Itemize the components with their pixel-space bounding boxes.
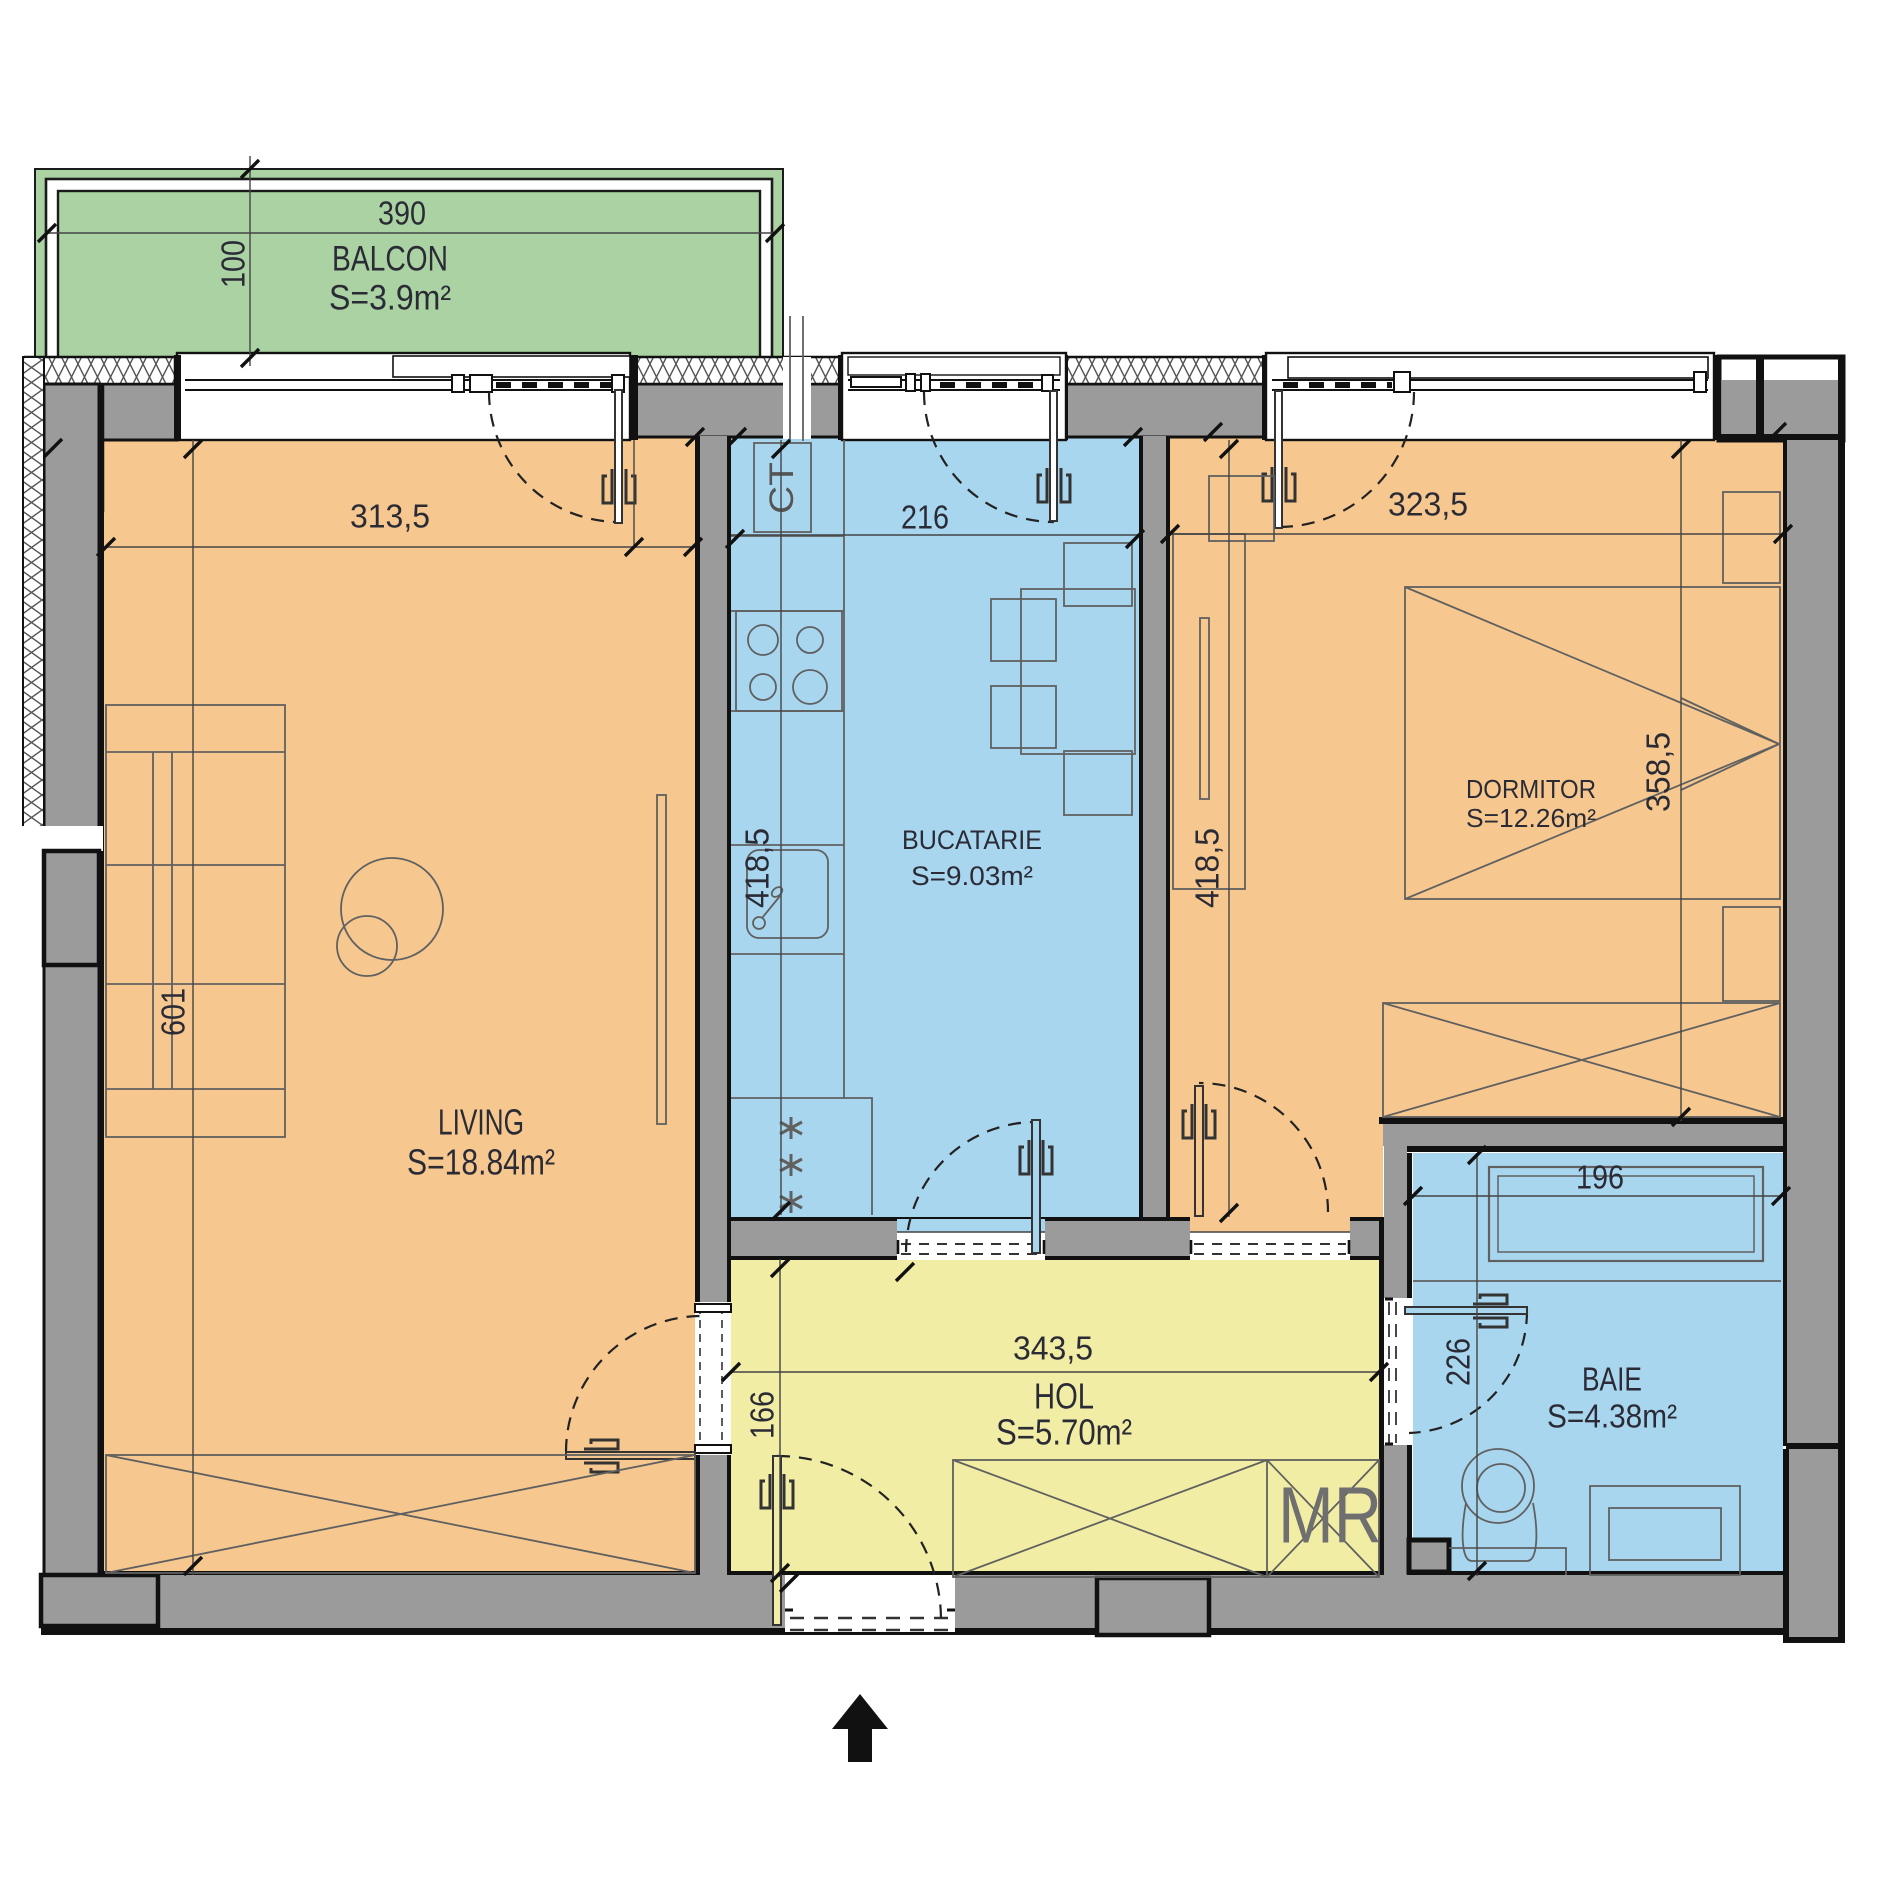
svg-text:MR: MR (1278, 1471, 1382, 1560)
svg-text:BUCATARIE: BUCATARIE (902, 825, 1042, 855)
svg-text:418,5: 418,5 (739, 828, 776, 908)
svg-text:166: 166 (744, 1391, 781, 1439)
svg-text:390: 390 (378, 195, 426, 232)
svg-text:HOL: HOL (1034, 1376, 1094, 1417)
svg-text:S=9.03m²: S=9.03m² (911, 861, 1033, 891)
svg-text:BAIE: BAIE (1582, 1361, 1642, 1398)
svg-text:LIVING: LIVING (438, 1102, 524, 1143)
svg-text:601: 601 (155, 988, 192, 1036)
svg-text:S=5.70m²: S=5.70m² (996, 1412, 1132, 1453)
svg-text:BALCON: BALCON (332, 240, 448, 279)
svg-text:216: 216 (901, 499, 949, 536)
svg-text:358,5: 358,5 (1640, 732, 1677, 812)
svg-text:S=3.9m²: S=3.9m² (329, 279, 451, 318)
svg-text:418,5: 418,5 (1189, 828, 1226, 908)
svg-text:S=12.26m²: S=12.26m² (1466, 803, 1596, 833)
svg-text:343,5: 343,5 (1013, 1330, 1093, 1367)
svg-text:196: 196 (1576, 1159, 1624, 1196)
svg-text:S=18.84m²: S=18.84m² (407, 1142, 555, 1183)
svg-text:100: 100 (215, 240, 252, 288)
svg-text:CT: CT (763, 462, 801, 514)
svg-text:DORMITOR: DORMITOR (1466, 774, 1596, 804)
svg-text:323,5: 323,5 (1388, 486, 1468, 523)
svg-text:313,5: 313,5 (350, 498, 430, 535)
svg-text:S=4.38m²: S=4.38m² (1547, 1398, 1677, 1435)
svg-text:226: 226 (1440, 1338, 1477, 1386)
